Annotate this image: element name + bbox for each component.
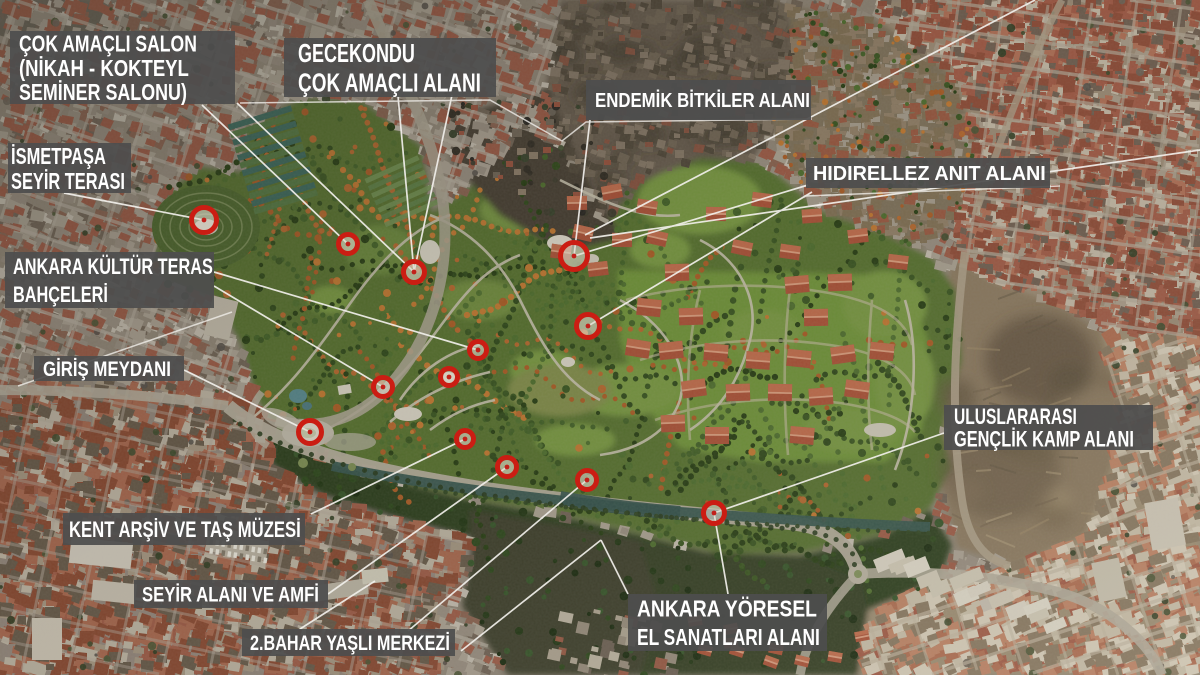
svg-text:ANKARA YÖRESEL: ANKARA YÖRESEL: [637, 595, 817, 622]
svg-text:ENDEMİK BİTKİLER ALANI: ENDEMİK BİTKİLER ALANI: [595, 89, 810, 112]
svg-text:(NİKAH - KOKTEYL: (NİKAH - KOKTEYL: [19, 56, 189, 81]
svg-text:SEYİR TERASI: SEYİR TERASI: [11, 168, 125, 194]
svg-text:2.BAHAR YAŞLI MERKEZİ: 2.BAHAR YAŞLI MERKEZİ: [250, 632, 450, 656]
svg-text:GECEKONDU: GECEKONDU: [298, 39, 415, 68]
svg-text:HIDIRELLEZ ANIT ALANI: HIDIRELLEZ ANIT ALANI: [813, 163, 1046, 185]
svg-text:ÇOK AMAÇLI SALON: ÇOK AMAÇLI SALON: [19, 31, 197, 57]
svg-text:GENÇLİK KAMP ALANI: GENÇLİK KAMP ALANI: [954, 426, 1134, 452]
svg-text:SEMİNER SALONU): SEMİNER SALONU): [19, 80, 187, 106]
svg-text:BAHÇELERİ: BAHÇELERİ: [13, 281, 108, 307]
svg-text:ANKARA KÜLTÜR TERAS: ANKARA KÜLTÜR TERAS: [13, 253, 213, 279]
svg-text:EL SANATLARI ALANI: EL SANATLARI ALANI: [637, 626, 820, 651]
svg-text:KENT ARŞİV VE TAŞ MÜZESİ: KENT ARŞİV VE TAŞ MÜZESİ: [69, 517, 301, 543]
svg-text:İSMETPAŞA: İSMETPAŞA: [11, 143, 106, 169]
svg-text:ULUSLARARASI: ULUSLARARASI: [954, 406, 1077, 430]
svg-text:GİRİŞ MEYDANI: GİRİŞ MEYDANI: [43, 358, 171, 381]
svg-text:SEYİR ALANI VE AMFİ: SEYİR ALANI VE AMFİ: [142, 584, 319, 607]
svg-text:ÇOK AMAÇLI ALANI: ÇOK AMAÇLI ALANI: [298, 68, 481, 98]
